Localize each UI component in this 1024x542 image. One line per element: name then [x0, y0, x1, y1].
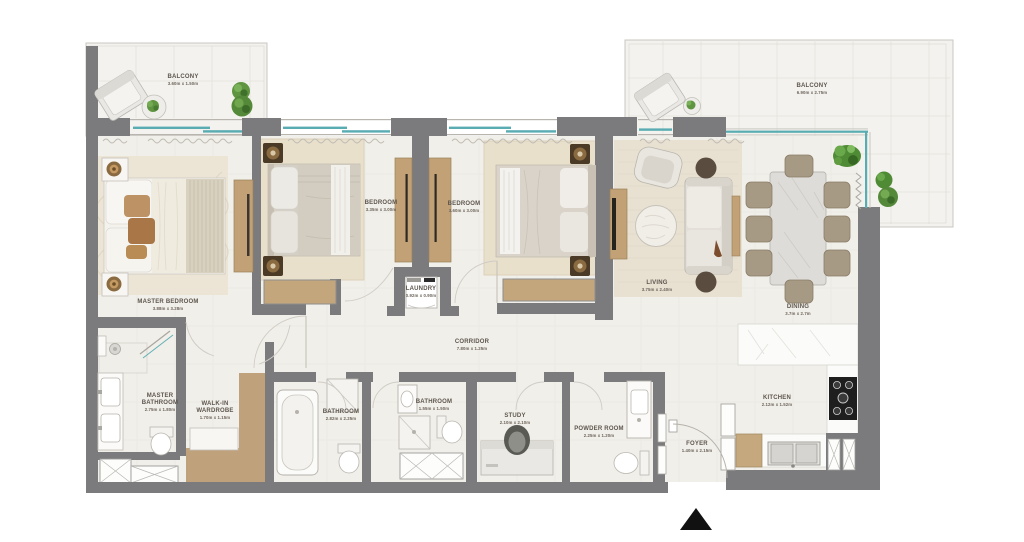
svg-text:BEDROOM: BEDROOM	[365, 200, 398, 206]
svg-text:1.55m x 1.50m: 1.55m x 1.50m	[419, 406, 450, 411]
svg-text:6.90m x 2.75m: 6.90m x 2.75m	[797, 90, 828, 95]
svg-text:BALCONY: BALCONY	[167, 74, 198, 80]
svg-text:MASTER: MASTER	[147, 393, 174, 399]
svg-text:3.60m x 3.00m: 3.60m x 3.00m	[449, 208, 480, 213]
svg-text:3.7m x 2.7m: 3.7m x 2.7m	[785, 311, 811, 316]
svg-text:3.35m x 3.00m: 3.35m x 3.00m	[366, 207, 397, 212]
svg-text:BEDROOM: BEDROOM	[448, 201, 481, 207]
svg-text:2.10m x 2.10m: 2.10m x 2.10m	[500, 420, 531, 425]
svg-text:WALK-IN: WALK-IN	[201, 401, 228, 407]
svg-text:1.70m x 1.15m: 1.70m x 1.15m	[200, 415, 231, 420]
svg-text:3.60m x 1.50m: 3.60m x 1.50m	[168, 81, 199, 86]
svg-text:LIVING: LIVING	[646, 280, 667, 286]
svg-text:1.40m x 2.15m: 1.40m x 2.15m	[682, 448, 713, 453]
svg-text:3.88m x 3.28m: 3.88m x 3.28m	[153, 306, 184, 311]
svg-text:2.25m x 1.20m: 2.25m x 1.20m	[584, 433, 615, 438]
svg-text:KITCHEN: KITCHEN	[763, 395, 791, 401]
svg-text:BATHROOM: BATHROOM	[323, 409, 359, 415]
svg-text:3.75m x 2.40m: 3.75m x 2.40m	[642, 287, 673, 292]
svg-text:CORRIDOR: CORRIDOR	[455, 339, 490, 345]
svg-text:2.82m x 2.25m: 2.82m x 2.25m	[326, 416, 357, 421]
svg-text:0.92m x 0.90m: 0.92m x 0.90m	[406, 293, 437, 298]
svg-text:FOYER: FOYER	[686, 441, 708, 447]
svg-text:WARDROBE: WARDROBE	[196, 408, 233, 414]
svg-text:BATHROOM: BATHROOM	[142, 400, 178, 406]
svg-text:BATHROOM: BATHROOM	[416, 399, 452, 405]
svg-text:POWDER ROOM: POWDER ROOM	[574, 426, 624, 432]
svg-text:2.75m x 1.80m: 2.75m x 1.80m	[145, 407, 176, 412]
svg-text:2.12m x 1.52m: 2.12m x 1.52m	[762, 402, 793, 407]
svg-text:MASTER BEDROOM: MASTER BEDROOM	[137, 299, 198, 305]
svg-text:STUDY: STUDY	[504, 413, 525, 419]
svg-text:7.80m x 1.25m: 7.80m x 1.25m	[457, 346, 488, 351]
svg-text:LAUNDRY: LAUNDRY	[406, 286, 437, 292]
svg-text:DINING: DINING	[787, 304, 809, 310]
svg-text:BALCONY: BALCONY	[796, 83, 827, 89]
